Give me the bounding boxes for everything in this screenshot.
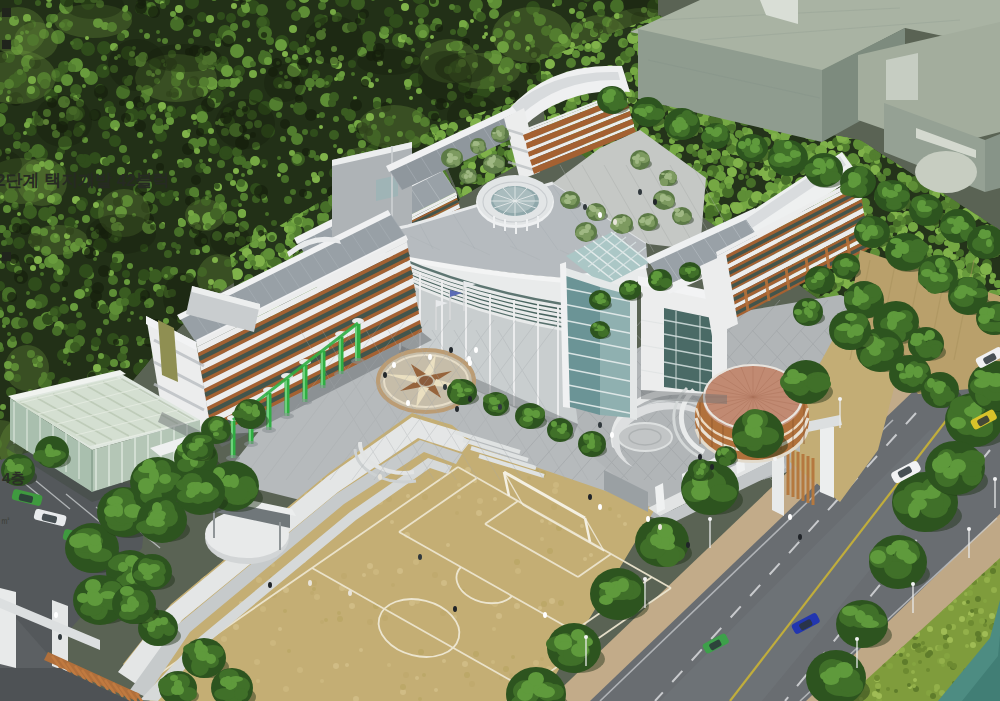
svg-text:4층: 4층 bbox=[2, 469, 25, 486]
svg-text:㎡: ㎡ bbox=[0, 514, 11, 526]
svg-text:2단계 택지개발 42블럭: 2단계 택지개발 42블럭 bbox=[0, 171, 170, 190]
